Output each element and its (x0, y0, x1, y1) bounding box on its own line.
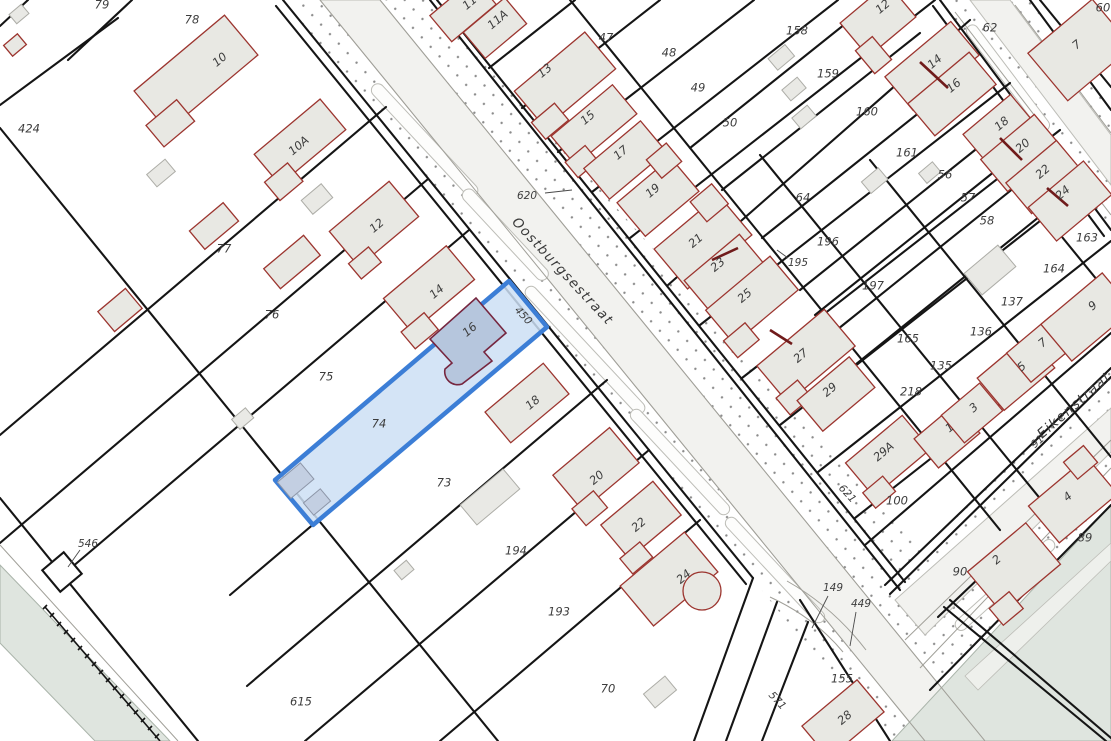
map-canvas[interactable] (0, 0, 1111, 741)
map-viewport[interactable]: 4247978777675747319419370615474849501581… (0, 0, 1111, 741)
